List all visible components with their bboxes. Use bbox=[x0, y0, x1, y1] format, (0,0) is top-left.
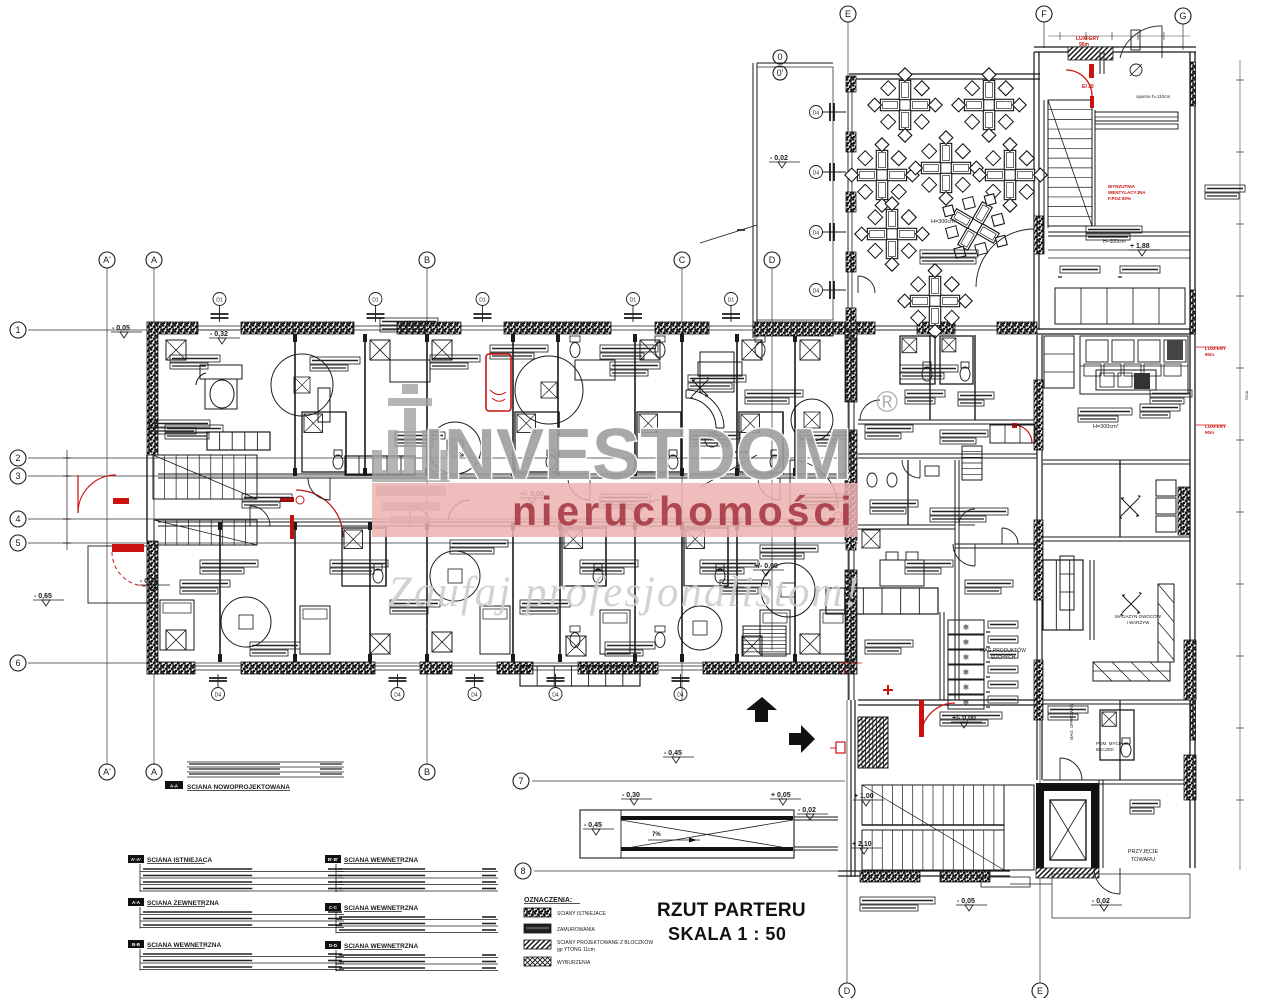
svg-text:5: 5 bbox=[15, 538, 20, 548]
svg-text:TOWARU: TOWARU bbox=[1131, 857, 1155, 863]
svg-text:4: 4 bbox=[15, 514, 20, 524]
svg-text:SCIANY ISTNIEJACE: SCIANY ISTNIEJACE bbox=[557, 911, 606, 917]
svg-text:D: D bbox=[844, 986, 851, 996]
svg-text:D4: D4 bbox=[813, 231, 820, 237]
svg-text:❄: ❄ bbox=[963, 698, 970, 707]
svg-text:E: E bbox=[1037, 986, 1043, 996]
svg-text:B-B: B-B bbox=[132, 942, 141, 947]
svg-text:- 0,32: - 0,32 bbox=[210, 331, 228, 338]
svg-text:2: 2 bbox=[15, 453, 20, 463]
svg-text:F.POZ 60%: F.POZ 60% bbox=[1108, 196, 1131, 201]
svg-text:+ 0,05: + 0,05 bbox=[771, 792, 791, 799]
svg-text:D4: D4 bbox=[394, 693, 401, 699]
svg-text:❄: ❄ bbox=[963, 623, 970, 632]
svg-text:- 0,05: - 0,05 bbox=[957, 898, 975, 905]
svg-text:- 0,45: - 0,45 bbox=[584, 822, 602, 829]
svg-text:D1: D1 bbox=[630, 298, 637, 304]
svg-text:D1: D1 bbox=[372, 298, 379, 304]
svg-text:SCIANA WEWNETRZNA: SCIANA WEWNETRZNA bbox=[344, 943, 418, 950]
svg-text:H=300cm²: H=300cm² bbox=[1093, 424, 1119, 430]
svg-text:RZUT PARTERU: RZUT PARTERU bbox=[657, 900, 806, 921]
svg-text:SCIANA WEWNETRZNA: SCIANA WEWNETRZNA bbox=[344, 905, 418, 912]
svg-text:MAGAZYN OWOCÓW: MAGAZYN OWOCÓW bbox=[1115, 613, 1161, 619]
svg-text:0': 0' bbox=[777, 68, 784, 78]
svg-text:7: 7 bbox=[518, 776, 523, 786]
svg-text:I WARZYW: I WARZYW bbox=[1127, 620, 1151, 625]
svg-text:H=300cm²: H=300cm² bbox=[931, 219, 957, 225]
svg-text:90m: 90m bbox=[1079, 42, 1090, 48]
svg-text:D4: D4 bbox=[471, 693, 478, 699]
svg-text:- 0,65: - 0,65 bbox=[34, 593, 52, 600]
svg-text:❄: ❄ bbox=[963, 668, 970, 677]
svg-text:D1: D1 bbox=[479, 298, 486, 304]
svg-text:SCIANA WEWNETRZNA: SCIANA WEWNETRZNA bbox=[147, 942, 221, 949]
svg-text:E: E bbox=[845, 9, 851, 19]
svg-text:WYBURZENIA: WYBURZENIA bbox=[557, 960, 591, 966]
svg-text:F: F bbox=[1041, 9, 1047, 19]
svg-text:- 0,45: - 0,45 bbox=[140, 578, 158, 585]
svg-text:8: 8 bbox=[520, 866, 525, 876]
svg-text:- 0,05: - 0,05 bbox=[112, 325, 130, 332]
svg-text:B: B bbox=[424, 255, 430, 265]
svg-text:- 0,45: - 0,45 bbox=[664, 750, 682, 757]
svg-text:❄: ❄ bbox=[963, 638, 970, 647]
svg-text:❄: ❄ bbox=[963, 653, 970, 662]
svg-text:D4: D4 bbox=[813, 111, 820, 117]
svg-text:3: 3 bbox=[15, 471, 20, 481]
svg-text:WENTYLACYJNA: WENTYLACYJNA bbox=[1108, 190, 1146, 195]
svg-text:D1: D1 bbox=[216, 298, 223, 304]
svg-text:D-D: D-D bbox=[329, 943, 338, 948]
svg-text:B'-B': B'-B' bbox=[328, 857, 338, 862]
svg-text:B: B bbox=[424, 767, 430, 777]
svg-text:nieruchomości: nieruchomości bbox=[512, 488, 856, 534]
svg-text:A': A' bbox=[103, 767, 111, 777]
svg-text:- 0,02: - 0,02 bbox=[770, 155, 788, 162]
svg-text:A: A bbox=[151, 767, 157, 777]
svg-text:gp YTONG 11cm: gp YTONG 11cm bbox=[557, 947, 595, 953]
svg-text:0: 0 bbox=[777, 52, 782, 62]
svg-text:- 0,30: - 0,30 bbox=[622, 792, 640, 799]
svg-text:❄: ❄ bbox=[963, 683, 970, 692]
svg-text:90m: 90m bbox=[1205, 352, 1214, 357]
svg-text:BECZEK: BECZEK bbox=[1096, 747, 1114, 752]
svg-text:D4: D4 bbox=[215, 693, 222, 699]
svg-text:PRZYJĘCIE: PRZYJĘCIE bbox=[1128, 849, 1159, 855]
svg-text:SCIANA ISTNIEJACA: SCIANA ISTNIEJACA bbox=[147, 857, 212, 864]
svg-text:- 0,02: - 0,02 bbox=[1092, 898, 1110, 905]
svg-text:G: G bbox=[1179, 11, 1186, 21]
svg-text:D1: D1 bbox=[728, 298, 735, 304]
svg-text:SCIANA NOWOPROJEKTOWANA: SCIANA NOWOPROJEKTOWANA bbox=[187, 784, 290, 791]
svg-text:A: A bbox=[151, 255, 157, 265]
svg-text:90m: 90m bbox=[1205, 430, 1214, 435]
svg-text:SCIA: SCIA bbox=[1244, 390, 1249, 400]
svg-text:A-A: A-A bbox=[132, 900, 141, 905]
svg-text:D: D bbox=[769, 255, 776, 265]
svg-text:6: 6 bbox=[15, 658, 20, 668]
svg-text:+/- 0,00: +/- 0,00 bbox=[952, 715, 976, 722]
svg-text:C-C: C-C bbox=[329, 905, 338, 910]
svg-text:POM. MYCIA: POM. MYCIA bbox=[1096, 741, 1123, 746]
svg-text:D4: D4 bbox=[552, 693, 559, 699]
svg-text:ZAMUROWANIA: ZAMUROWANIA bbox=[557, 927, 596, 933]
svg-text:A'-A': A'-A' bbox=[131, 857, 141, 862]
svg-text:+ 1,88: + 1,88 bbox=[1130, 243, 1150, 250]
svg-text:D4: D4 bbox=[813, 171, 820, 177]
svg-text:A': A' bbox=[103, 255, 111, 265]
svg-text:MAG. OPAKOWAŃ: MAG. OPAKOWAŃ bbox=[1069, 704, 1074, 740]
svg-text:- 0,02: - 0,02 bbox=[798, 807, 816, 814]
svg-text:D4: D4 bbox=[813, 289, 820, 295]
svg-text:+ 1,00: + 1,00 bbox=[854, 793, 874, 800]
svg-text:OZNACZENIA:: OZNACZENIA: bbox=[524, 897, 572, 904]
svg-text:oparcie h=110cm: oparcie h=110cm bbox=[1136, 94, 1171, 99]
svg-text:H=300cm²: H=300cm² bbox=[1103, 239, 1127, 245]
svg-text:Zaufaj profesjonalistom!: Zaufaj profesjonalistom! bbox=[388, 569, 861, 616]
svg-text:7%: 7% bbox=[652, 832, 661, 838]
svg-text:A-A: A-A bbox=[170, 784, 179, 789]
svg-text:WYRZUTNIA: WYRZUTNIA bbox=[1108, 184, 1136, 189]
svg-text:1: 1 bbox=[15, 325, 20, 335]
svg-text:®: ® bbox=[876, 386, 898, 419]
svg-text:SCIANA ZEWNETRZNA: SCIANA ZEWNETRZNA bbox=[147, 900, 219, 907]
svg-text:MAG.PRODUKTÓW: MAG.PRODUKTÓW bbox=[980, 647, 1026, 654]
svg-text:SUCHYCH: SUCHYCH bbox=[991, 655, 1016, 661]
svg-text:EI 30: EI 30 bbox=[1082, 84, 1094, 90]
svg-text:SCIANA WEWNETRZNA: SCIANA WEWNETRZNA bbox=[344, 857, 418, 864]
svg-text:SCIANY PROJEKTOWANE Z BLOCZKÓW: SCIANY PROJEKTOWANE Z BLOCZKÓW bbox=[557, 939, 653, 946]
svg-text:D4: D4 bbox=[677, 693, 684, 699]
svg-text:C: C bbox=[679, 255, 686, 265]
svg-text:SKALA 1 : 50: SKALA 1 : 50 bbox=[668, 924, 786, 944]
svg-text:+ 2,10: + 2,10 bbox=[852, 841, 872, 848]
